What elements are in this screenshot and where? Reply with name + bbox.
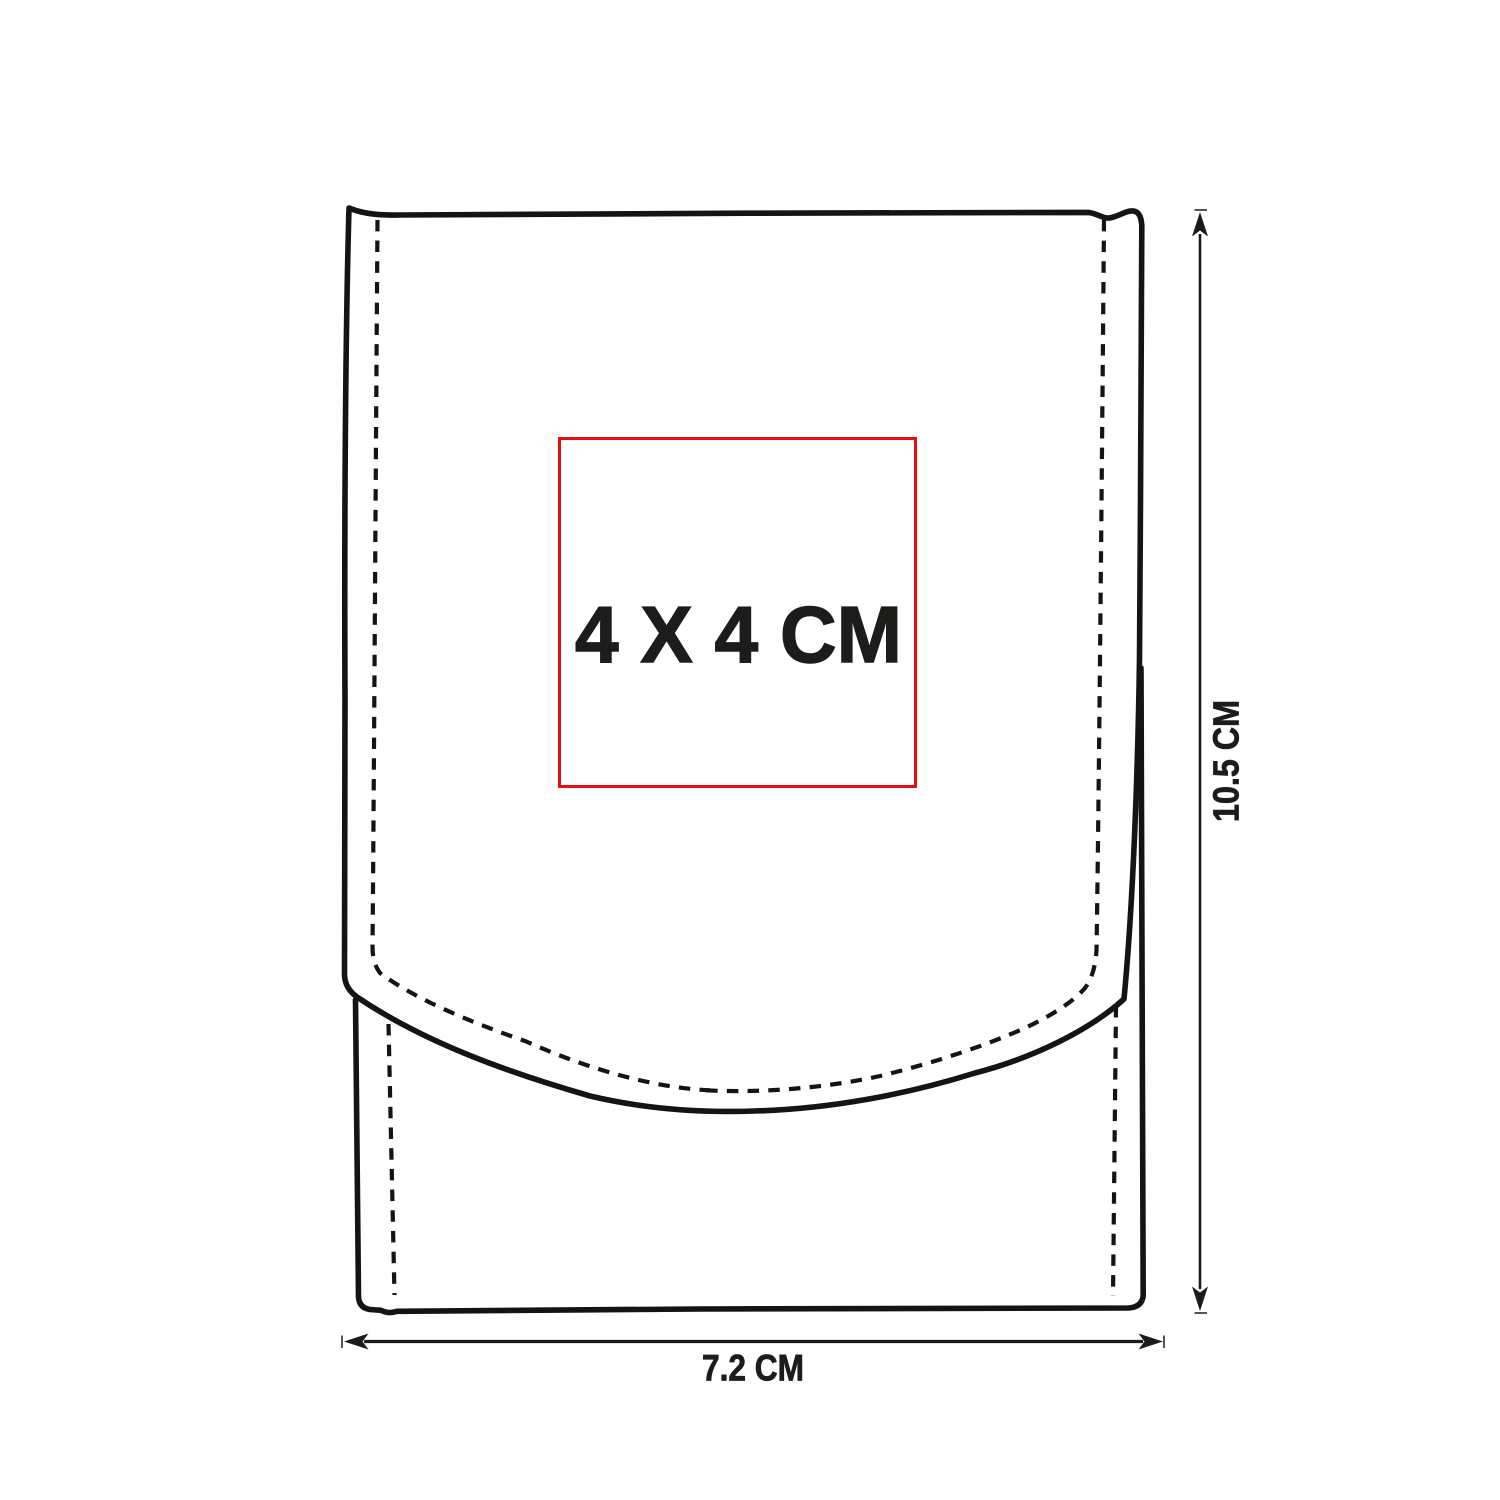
svg-text:4 X 4 CM: 4 X 4 CM [575, 590, 902, 679]
svg-text:10.5 CM: 10.5 CM [1206, 700, 1247, 822]
svg-text:7.2 CM: 7.2 CM [702, 1348, 804, 1389]
